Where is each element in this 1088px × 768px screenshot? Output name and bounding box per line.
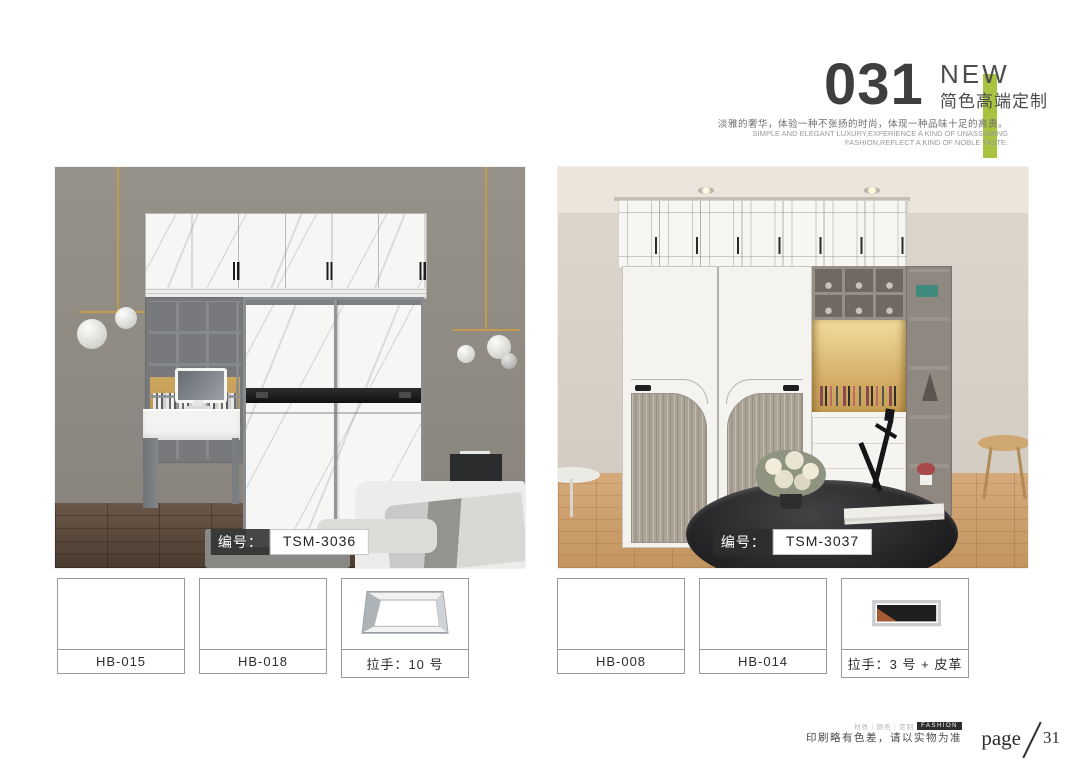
pendant-globe	[457, 345, 475, 363]
catalog-page: 031 NEW 简色高端定制 淡雅的奢华，体验一种不张扬的时尚，体现一种品味十足…	[0, 0, 1088, 768]
cubby-cell	[845, 269, 872, 292]
stool-seat	[978, 435, 1028, 451]
cubby-cell	[845, 295, 872, 318]
door-handle-band	[246, 388, 421, 403]
desk-leg	[232, 438, 239, 504]
top-cabinets	[145, 213, 427, 299]
recessed-light	[864, 187, 880, 194]
cubby-cell	[815, 295, 842, 318]
flower-bouquet	[756, 450, 826, 497]
page-number-value: 31	[1043, 728, 1060, 748]
door-handle	[783, 385, 799, 391]
figure-sculpture	[858, 407, 904, 517]
swatch-card: HB-014	[699, 578, 827, 678]
handle-3-leather-sample	[841, 578, 969, 650]
swatch-card: HB-008	[557, 578, 685, 678]
footer-brand-badge: FASHION	[917, 722, 962, 730]
product-code: TSM-3036	[270, 529, 369, 555]
product-code: TSM-3037	[773, 529, 872, 555]
pendant-wire	[117, 167, 119, 312]
recessed-light	[698, 187, 714, 194]
stool-leg	[982, 447, 992, 499]
subtitle-english: SIMPLE AND ELEGANT LUXURY,EXPERIENCE A K…	[736, 129, 1008, 148]
tall-open-shelf	[906, 266, 952, 516]
pendant-globe	[77, 319, 107, 349]
sculpture-part	[884, 408, 895, 421]
door-trim-line	[246, 412, 421, 414]
wood-grain-sample	[557, 578, 685, 650]
cubby-cell	[815, 269, 842, 292]
swatch-card: HB-018	[199, 578, 327, 678]
flower-decor	[917, 463, 935, 475]
print-disclaimer: 印刷略有色差，请以实物为准	[806, 730, 962, 745]
cabinet-door-seams	[619, 201, 907, 267]
swatch-label: HB-014	[699, 649, 827, 674]
swatch-label: HB-008	[557, 649, 685, 674]
cubby-cell	[876, 269, 903, 292]
cabinet-handles	[146, 262, 426, 280]
swatch-card: 拉手：10 号	[341, 578, 469, 678]
eiffel-tower-decor	[922, 373, 938, 401]
door-divider	[334, 300, 337, 547]
swatch-label: 拉手：3 号 + 皮革	[841, 649, 969, 678]
handle-10-icon	[350, 582, 460, 646]
new-badge: NEW	[940, 61, 1010, 87]
black-marble-sample	[199, 578, 327, 650]
wood-stool	[978, 435, 1028, 515]
desk	[143, 409, 240, 440]
swatch-card: HB-015	[57, 578, 185, 678]
swatch-label: HB-018	[199, 649, 327, 674]
decor-box	[916, 285, 938, 297]
desk-side-panel	[143, 438, 158, 508]
handle-3-leather-icon	[850, 582, 960, 646]
product-photo-tsm-3037: 编号： TSM-3037	[558, 167, 1028, 568]
pendant-bar	[453, 329, 519, 331]
wall-lamp	[501, 353, 517, 369]
page-number: page 31	[981, 720, 1060, 760]
white-marble-sample	[57, 578, 185, 650]
series-title: 简色高端定制	[940, 93, 1048, 110]
cream-sample	[699, 578, 827, 650]
cosmetics	[820, 386, 899, 406]
swatch-group-right: HB-008 HB-014 拉手：3 号 + 皮革	[557, 578, 969, 678]
subtitle-chinese: 淡雅的奢华，体验一种不张扬的时尚，体现一种品味十足的高贵。	[718, 116, 1008, 130]
handle-10-sample	[341, 578, 469, 650]
cabinet-handles	[619, 237, 907, 254]
stool-leg	[1016, 447, 1026, 499]
cubby-cell	[876, 295, 903, 318]
swatch-label: HB-015	[57, 649, 185, 674]
caption-prefix: 编号：	[211, 529, 270, 555]
page-slash	[1022, 722, 1041, 759]
caption-prefix: 编号：	[714, 529, 773, 555]
top-cabinets	[618, 200, 908, 268]
swatch-label: 拉手：10 号	[341, 649, 469, 678]
swatch-group-left: HB-015 HB-018 拉手：10 号	[57, 578, 469, 678]
flower-pot	[920, 475, 932, 485]
page-section-number: 031	[824, 56, 924, 114]
door-handle	[635, 385, 651, 391]
pendant-wire	[485, 167, 487, 330]
computer-monitor	[175, 368, 227, 403]
lighted-niche	[812, 320, 906, 412]
display-cubbies	[812, 266, 906, 320]
page-word: page	[981, 726, 1021, 751]
cabinet-door-seams	[146, 214, 426, 298]
vase	[780, 494, 802, 509]
product-code-caption: 编号： TSM-3037	[714, 529, 872, 555]
pendant-globe	[115, 307, 137, 329]
product-code-caption: 编号： TSM-3036	[211, 529, 369, 555]
side-table-leg	[570, 479, 573, 517]
product-photo-tsm-3036: 编号： TSM-3036	[55, 167, 525, 568]
swatch-card: 拉手：3 号 + 皮革	[841, 578, 969, 678]
